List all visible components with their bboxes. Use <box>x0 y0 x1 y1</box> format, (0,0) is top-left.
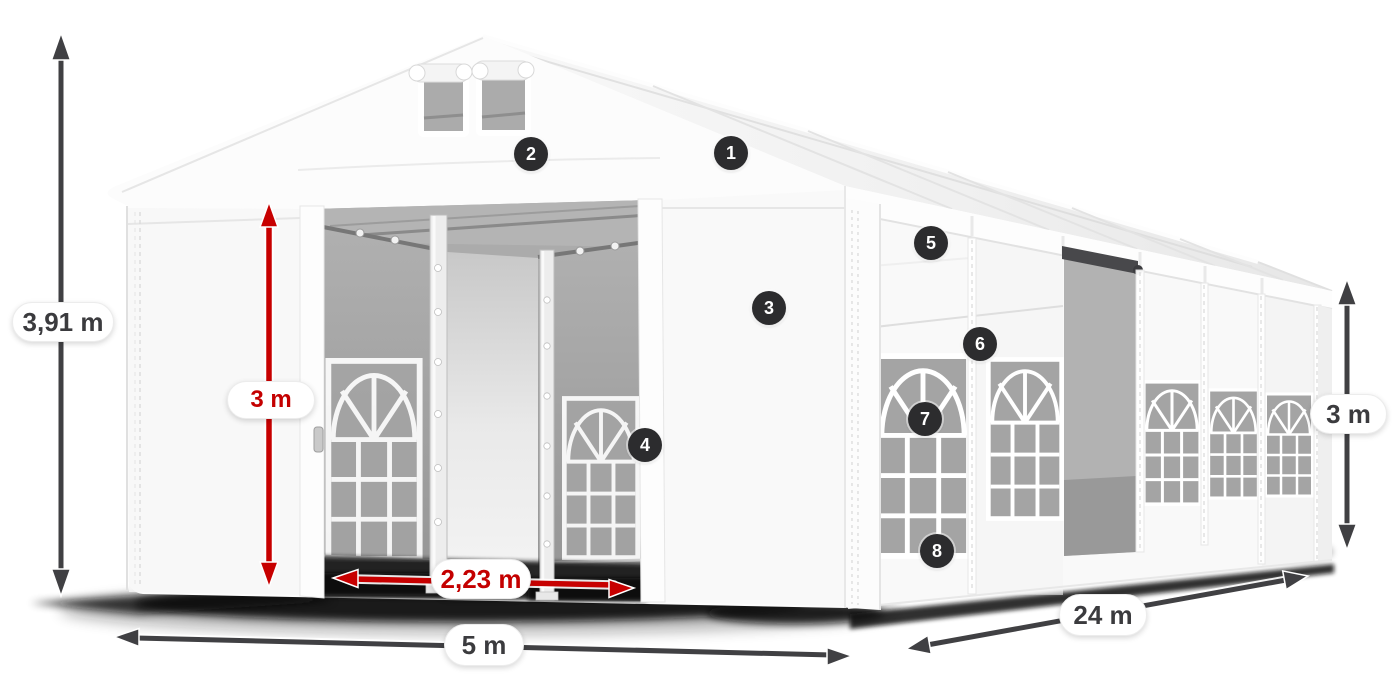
front-entrance <box>311 200 650 601</box>
label-total-height: 3,91 m <box>12 302 114 342</box>
label-tent-width: 5 m <box>444 624 524 666</box>
label-door-width: 2,23 m <box>431 559 531 599</box>
callout-2: 2 <box>514 137 548 171</box>
callout-6: 6 <box>963 327 997 361</box>
callout-4: 4 <box>628 428 662 462</box>
tent-illustration <box>0 0 1400 700</box>
callout-7: 7 <box>908 402 942 436</box>
door-handle <box>314 427 323 452</box>
roller-bar <box>409 64 472 82</box>
tent-dimensions-diagram: { "diagram": { "subject": "party tent wi… <box>0 0 1400 700</box>
label-tent-length: 24 m <box>1059 594 1147 636</box>
roller-bar <box>472 61 534 80</box>
label-side-height: 3 m <box>1310 394 1387 434</box>
tent-side-wall <box>836 186 1332 610</box>
callout-8: 8 <box>920 534 954 568</box>
callout-5: 5 <box>914 226 948 260</box>
label-door-height: 3 m <box>227 381 315 419</box>
frame-pole <box>426 215 451 593</box>
callout-1: 1 <box>714 136 748 170</box>
callout-3: 3 <box>752 291 786 325</box>
side-door <box>1062 246 1143 556</box>
